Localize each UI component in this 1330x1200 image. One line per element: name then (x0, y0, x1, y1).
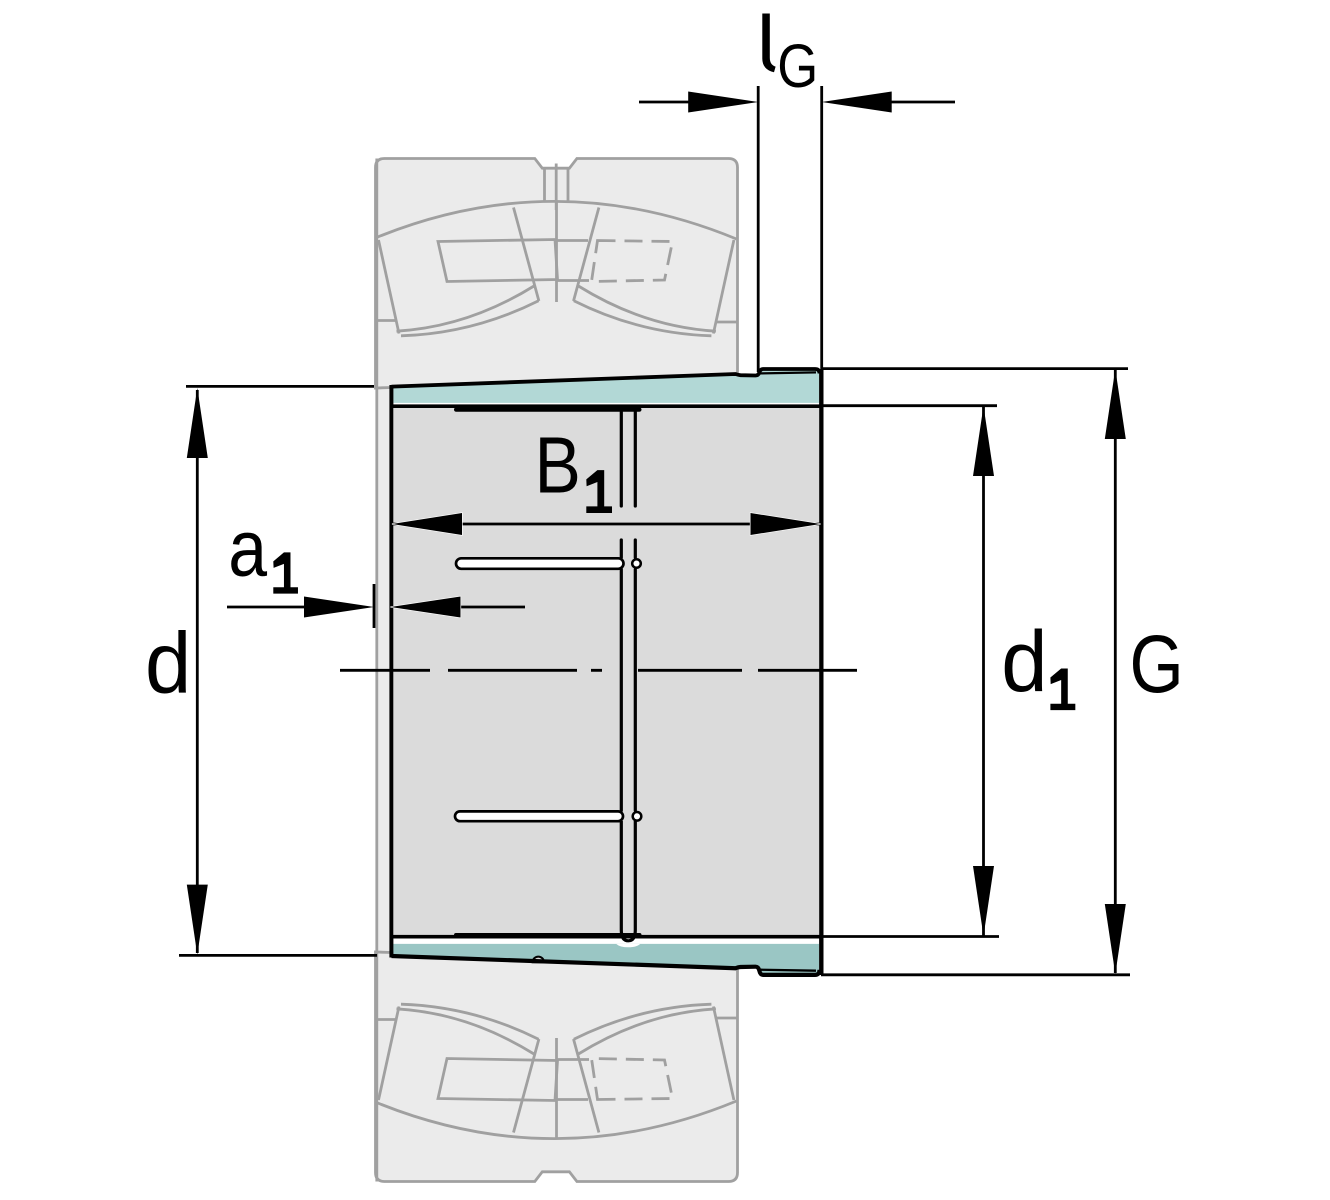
svg-text:G: G (1130, 619, 1184, 710)
svg-text:B: B (535, 421, 581, 510)
svg-text:d: d (145, 616, 191, 712)
svg-text:G: G (777, 32, 818, 100)
svg-text:d: d (1001, 614, 1047, 710)
svg-text:a: a (228, 503, 267, 592)
